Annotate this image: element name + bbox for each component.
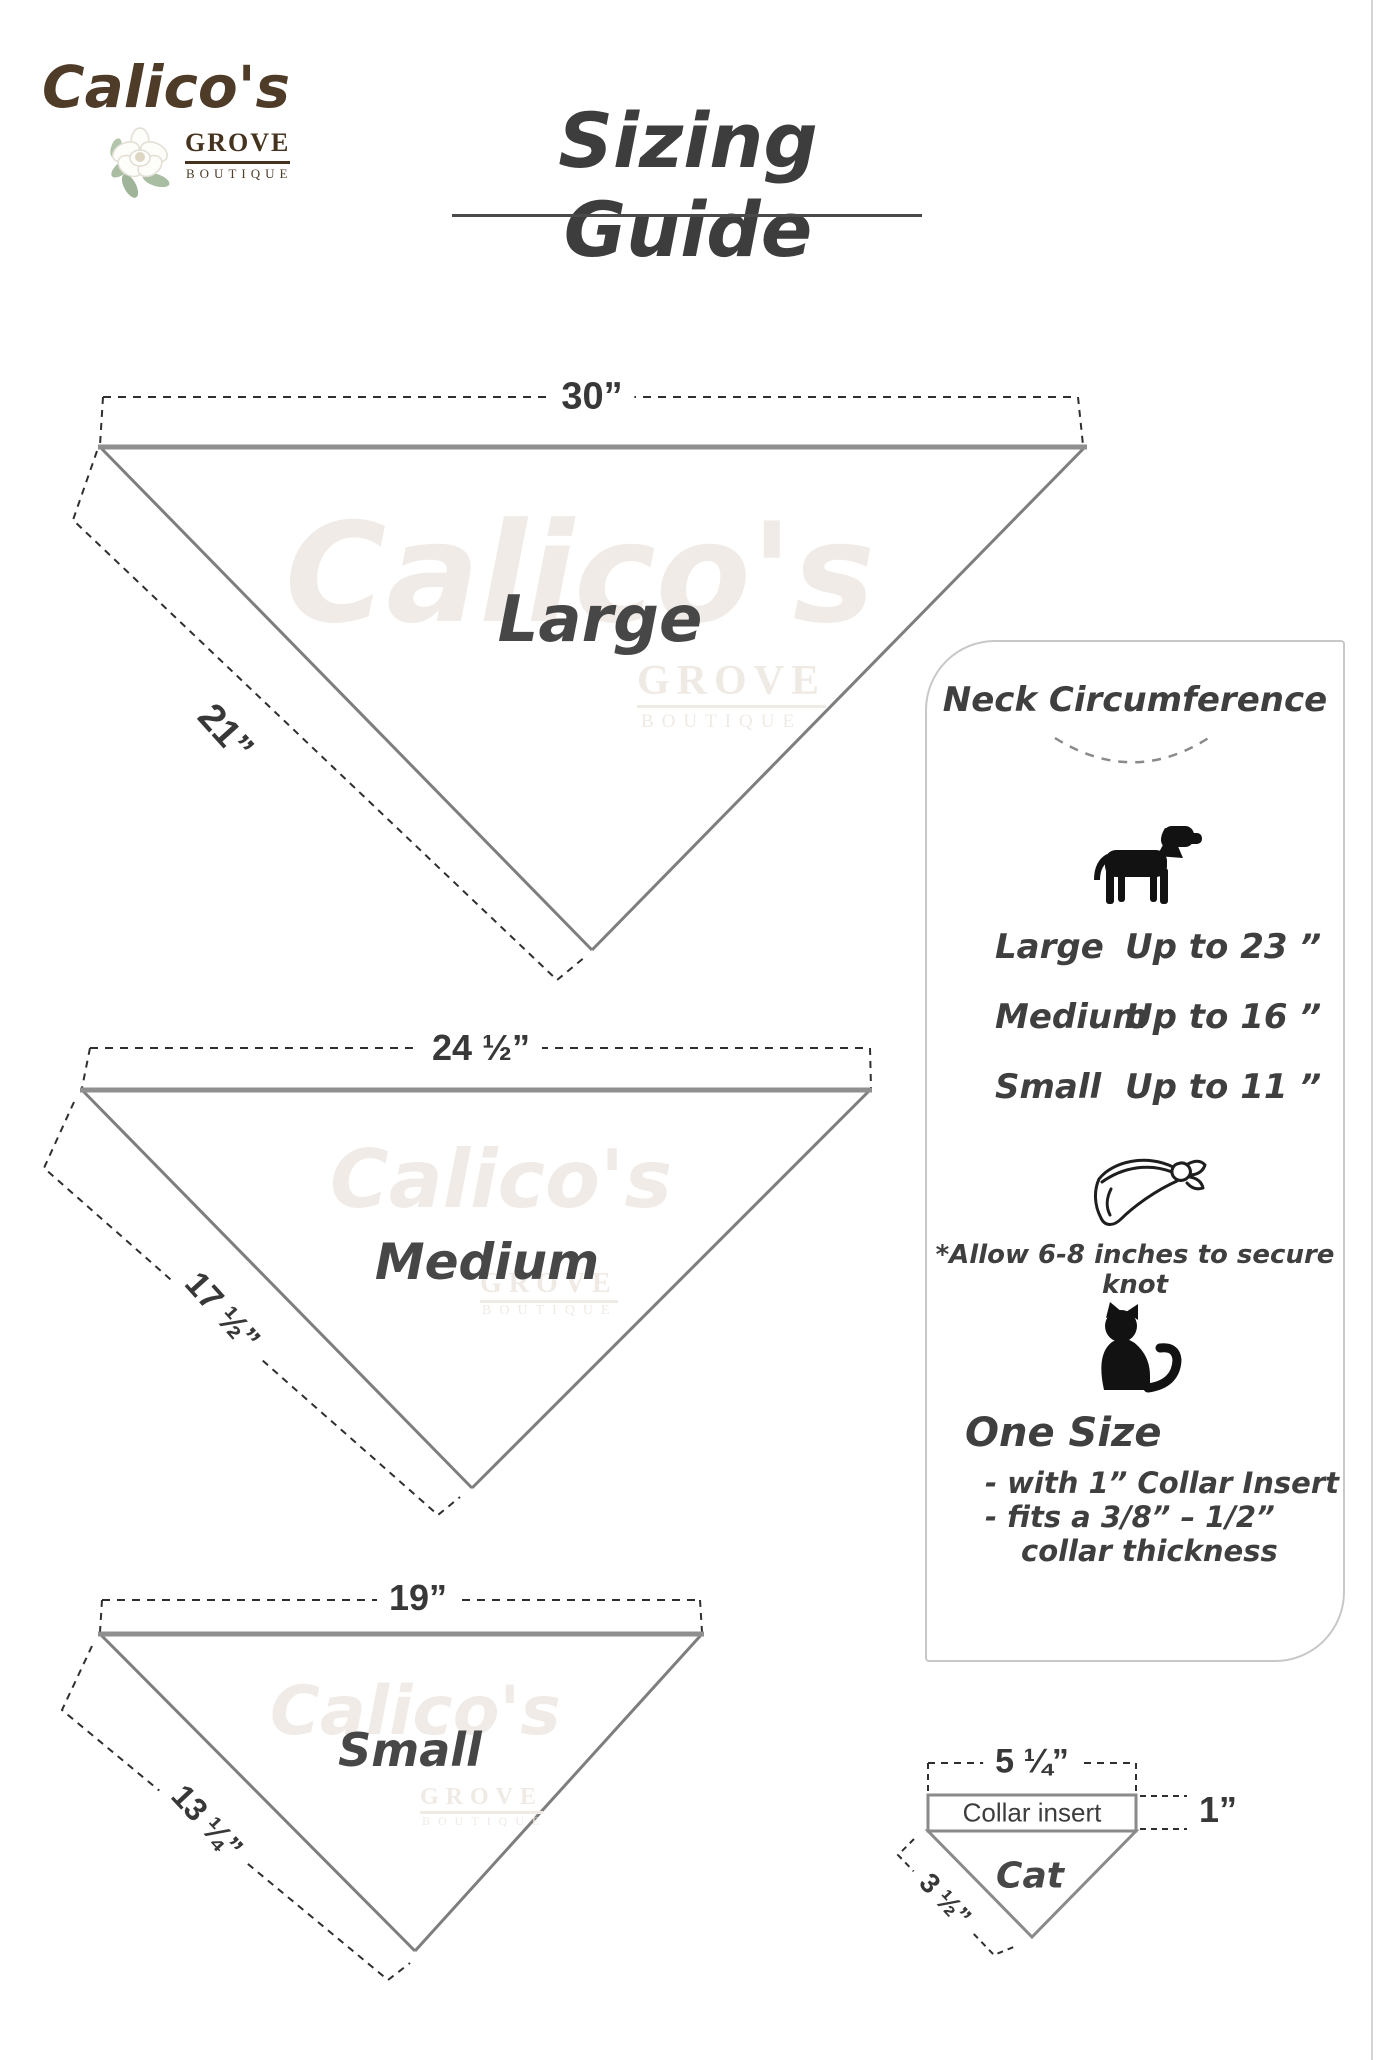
size-row-value: Up to 16 ” xyxy=(1125,997,1321,1037)
page-title: Sizing Guide xyxy=(448,96,928,274)
one-size-line1: - with 1” Collar Insert xyxy=(985,1466,1339,1500)
page-edge-line xyxy=(1371,0,1373,2060)
knot-note: *Allow 6-8 inches to secure knot xyxy=(927,1240,1343,1300)
dog-icon xyxy=(1075,814,1210,914)
panel-heading: Neck Circumference xyxy=(927,680,1343,720)
brand-grove: GROVE xyxy=(185,128,290,164)
size-row-value: Up to 23 ” xyxy=(1125,927,1321,967)
one-size-heading: One Size xyxy=(965,1410,1161,1456)
cat-width-label: 5 ¼” xyxy=(983,1741,1081,1784)
title-underline xyxy=(452,214,922,217)
brand-logo: Calico's GROVE BOUTIQUE xyxy=(42,58,322,208)
small-label: Small xyxy=(338,1723,482,1777)
large-width-label: 30” xyxy=(549,374,634,421)
insert-height-label: 1” xyxy=(1187,1787,1249,1833)
bandana-icon xyxy=(1085,1147,1210,1239)
measure-curve-dashes xyxy=(1047,730,1222,792)
size-row-label: Small xyxy=(995,1067,1101,1107)
large-label: Large xyxy=(498,583,703,657)
size-row-medium: Medium Up to 16 ” xyxy=(927,997,1343,1067)
cat-icon xyxy=(1090,1302,1190,1397)
collar-insert-label: Collar insert xyxy=(963,1798,1102,1829)
neck-circumference-panel: Neck Circumference Large Up to 23 ” xyxy=(925,640,1345,1662)
size-row-label: Large xyxy=(995,927,1104,967)
insert-height-dim xyxy=(1140,1796,1188,1829)
brand-name: Calico's xyxy=(42,58,322,116)
size-row-small: Small Up to 11 ” xyxy=(927,1067,1343,1137)
medium-width-label: 24 ½” xyxy=(420,1025,542,1071)
brand-boutique: BOUTIQUE xyxy=(186,166,292,182)
flower-icon xyxy=(100,116,182,202)
size-row-large: Large Up to 23 ” xyxy=(927,927,1343,997)
small-width-label: 19” xyxy=(377,1575,459,1621)
size-row-value: Up to 11 ” xyxy=(1125,1067,1321,1107)
medium-label: Medium xyxy=(375,1233,599,1291)
one-size-line3: collar thickness xyxy=(1021,1534,1278,1568)
sizing-guide-page: Calico's GROVE BOUTIQUE Sizing Gu xyxy=(0,0,1376,2060)
cat-label: Cat xyxy=(996,1856,1064,1897)
one-size-line2: - fits a 3/8” – 1/2” xyxy=(985,1500,1275,1534)
